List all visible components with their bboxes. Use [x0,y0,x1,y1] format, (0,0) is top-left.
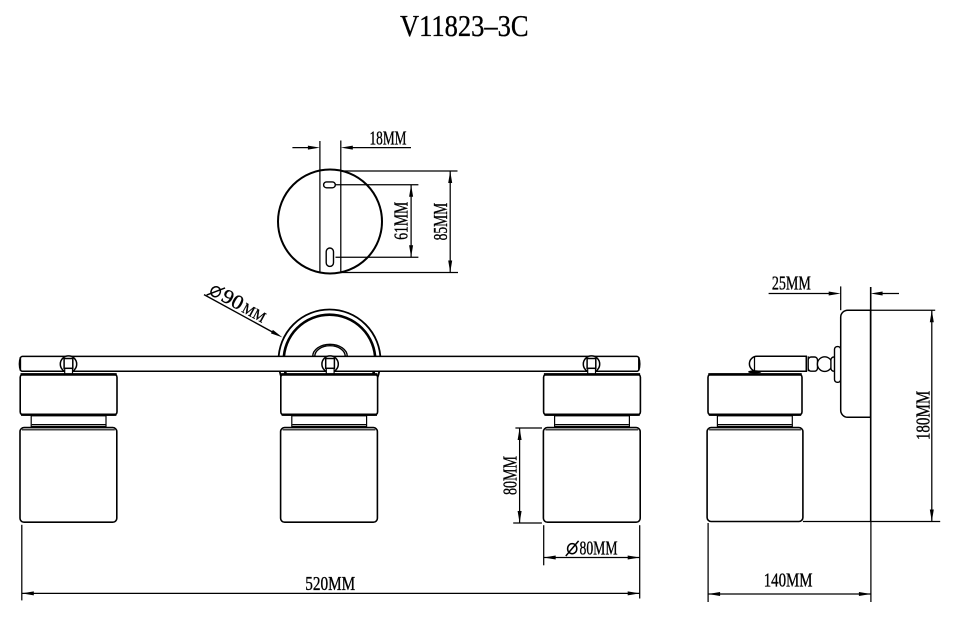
svg-text:18MM: 18MM [370,127,407,149]
svg-text:520MM: 520MM [305,573,355,595]
svg-text:80MM: 80MM [580,537,618,559]
svg-text:180MM: 180MM [913,391,935,440]
svg-text:80MM: 80MM [500,456,522,495]
svg-text:85MM: 85MM [430,203,452,241]
svg-text:25MM: 25MM [772,273,811,295]
svg-text:V11823–3C: V11823–3C [400,8,529,43]
svg-text:140MM: 140MM [764,570,813,592]
svg-text:61MM: 61MM [391,202,413,240]
